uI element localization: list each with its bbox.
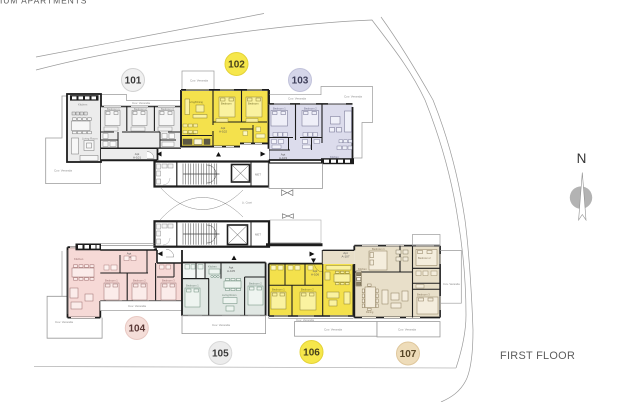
svg-text:Bedroom: Bedroom <box>248 102 259 106</box>
svg-text:N: N <box>577 151 587 166</box>
svg-text:Living Room: Living Room <box>222 293 236 297</box>
svg-text:Cov. Veranda: Cov. Veranda <box>344 95 362 99</box>
svg-text:Bedroom 1: Bedroom 1 <box>107 107 120 111</box>
svg-text:Bedroom 2: Bedroom 2 <box>418 256 431 260</box>
svg-text:Bedroom 2: Bedroom 2 <box>304 107 317 111</box>
svg-text:103: 103 <box>292 76 309 87</box>
svg-text:Cov. Veranda: Cov. Veranda <box>55 320 73 324</box>
svg-text:MET: MET <box>255 173 261 177</box>
svg-text:Cov. Veranda: Cov. Veranda <box>128 304 146 308</box>
svg-text:Cov. Veranda: Cov. Veranda <box>324 328 342 332</box>
svg-text:Bedroom 2: Bedroom 2 <box>249 282 262 286</box>
svg-text:Lt. Court: Lt. Court <box>242 201 252 205</box>
svg-text:Bedroom 1: Bedroom 1 <box>273 107 286 111</box>
svg-text:Cov. Veranda: Cov. Veranda <box>443 282 460 286</box>
svg-text:IUM APARTMENTS: IUM APARTMENTS <box>0 0 87 6</box>
svg-text:A-103: A-103 <box>279 156 287 160</box>
svg-text:Cov. Veranda: Cov. Veranda <box>212 323 230 327</box>
svg-text:Kitchen: Kitchen <box>74 257 84 261</box>
svg-text:Bedroom 2: Bedroom 2 <box>301 288 314 292</box>
svg-text:Cov. Veranda: Cov. Veranda <box>398 328 416 332</box>
svg-text:A-106: A-106 <box>311 273 319 277</box>
svg-text:Kitchen: Kitchen <box>208 265 217 269</box>
svg-text:Kitchen: Kitchen <box>358 267 367 271</box>
svg-text:Bedroom 3: Bedroom 3 <box>162 279 175 283</box>
svg-text:105: 105 <box>212 349 229 360</box>
svg-text:Bedroom 2: Bedroom 2 <box>134 107 147 111</box>
svg-text:Bedroom 2: Bedroom 2 <box>133 279 146 283</box>
svg-text:Dining: Dining <box>366 310 374 314</box>
svg-text:107: 107 <box>400 349 417 360</box>
svg-text:Cov. Veranda: Cov. Veranda <box>190 79 208 83</box>
svg-text:Kitchen: Kitchen <box>187 132 196 136</box>
svg-text:102: 102 <box>228 60 245 71</box>
svg-text:A-107: A-107 <box>341 255 349 259</box>
svg-text:MET: MET <box>255 233 261 237</box>
svg-text:A-102: A-102 <box>219 130 227 134</box>
svg-text:Cov. Veranda: Cov. Veranda <box>132 101 150 105</box>
svg-text:Bedroom 3: Bedroom 3 <box>161 107 174 111</box>
svg-text:A-105: A-105 <box>227 269 235 273</box>
svg-text:Cov. Veranda: Cov. Veranda <box>54 169 72 173</box>
svg-text:Bedroom: Bedroom <box>221 102 232 106</box>
svg-text:A-101: A-101 <box>133 156 141 160</box>
svg-text:Cov. Veranda: Cov. Veranda <box>288 97 306 101</box>
svg-text:Kitchen: Kitchen <box>78 103 88 107</box>
svg-text:Bedroom 1: Bedroom 1 <box>186 284 199 288</box>
svg-text:106: 106 <box>303 348 320 359</box>
svg-text:FIRST FLOOR: FIRST FLOOR <box>500 350 575 362</box>
svg-text:104: 104 <box>128 324 145 335</box>
svg-text:101: 101 <box>125 76 142 87</box>
svg-text:Bedroom 1: Bedroom 1 <box>372 247 385 251</box>
svg-text:Bedroom 1: Bedroom 1 <box>105 279 118 283</box>
svg-text:Living/Dining: Living/Dining <box>188 100 203 104</box>
svg-text:Bedroom 3: Bedroom 3 <box>417 293 430 297</box>
svg-text:Living Room: Living Room <box>82 137 98 141</box>
svg-text:Bedroom 1: Bedroom 1 <box>272 288 285 292</box>
